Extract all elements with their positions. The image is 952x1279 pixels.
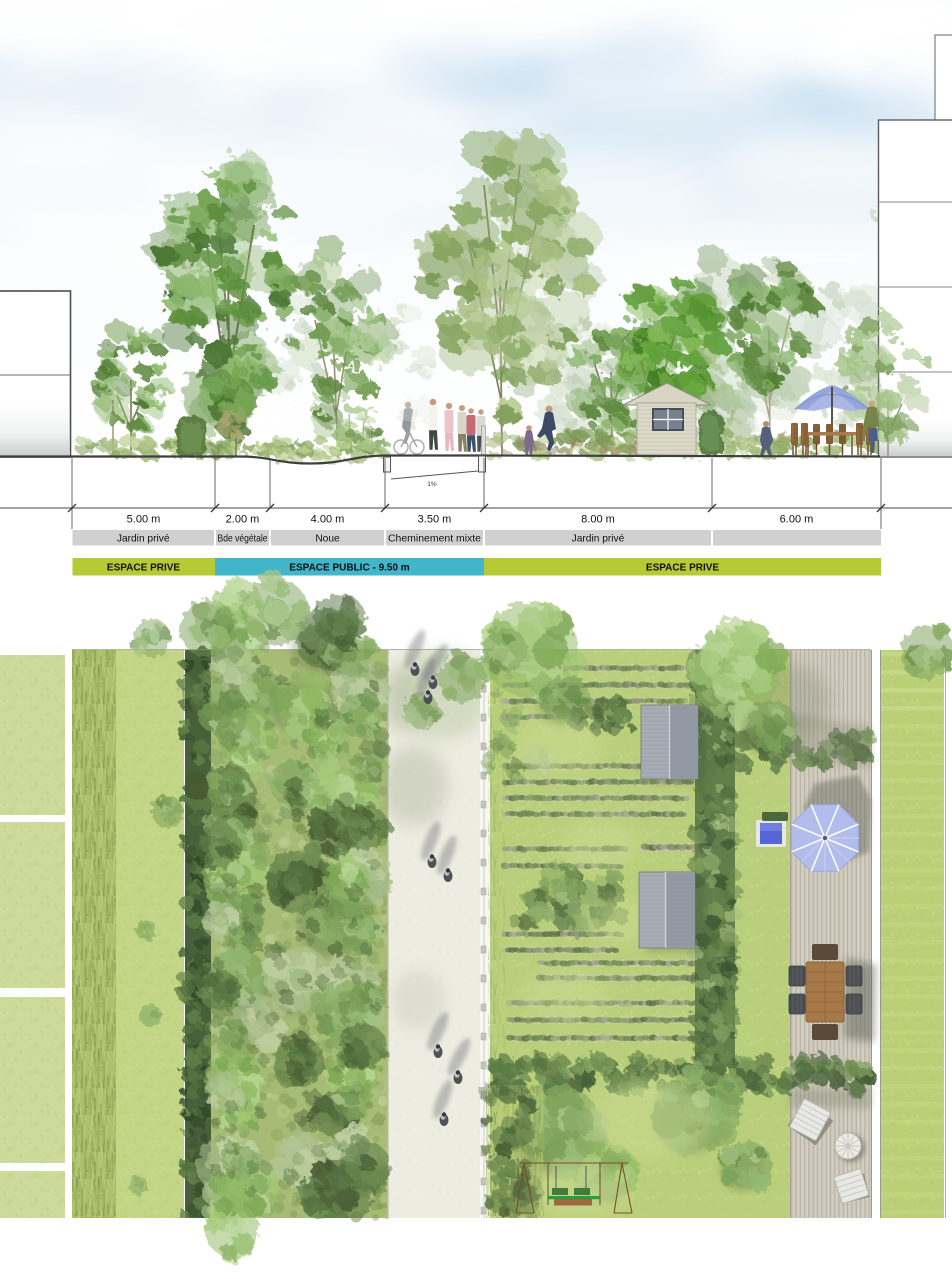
svg-text:Noue: Noue [315, 534, 340, 545]
svg-text:ESPACE PRIVE: ESPACE PRIVE [107, 563, 180, 574]
svg-text:Cheminement mixte: Cheminement mixte [388, 534, 481, 545]
svg-text:8.00 m: 8.00 m [581, 514, 615, 526]
svg-text:4.00 m: 4.00 m [311, 514, 345, 526]
svg-text:Bde végétale: Bde végétale [218, 534, 268, 545]
svg-text:ESPACE PRIVE: ESPACE PRIVE [646, 563, 719, 574]
svg-text:Jardin privé: Jardin privé [117, 534, 170, 545]
svg-text:5.00 m: 5.00 m [127, 514, 161, 526]
svg-text:3.50 m: 3.50 m [418, 514, 452, 526]
svg-text:2.00 m: 2.00 m [226, 514, 260, 526]
svg-text:Jardin privé: Jardin privé [572, 534, 625, 545]
svg-text:1%: 1% [427, 481, 437, 488]
svg-text:ESPACE PUBLIC - 9.50 m: ESPACE PUBLIC - 9.50 m [289, 563, 410, 574]
svg-text:6.00 m: 6.00 m [780, 514, 814, 526]
